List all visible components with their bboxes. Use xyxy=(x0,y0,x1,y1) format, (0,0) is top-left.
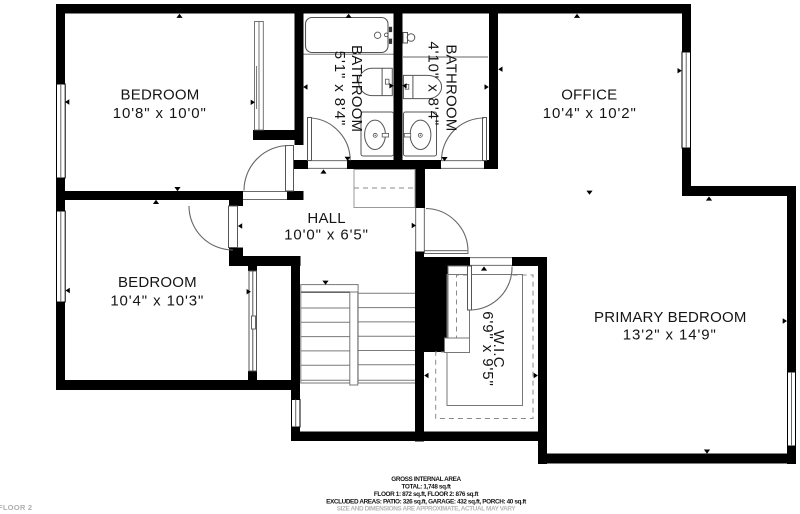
svg-text:EXCLUDED AREAS: PATIO: 326 sq.: EXCLUDED AREAS: PATIO: 326 sq.ft, GARAGE… xyxy=(326,498,527,505)
svg-text:BEDROOM: BEDROOM xyxy=(118,274,197,291)
svg-text:PRIMARY BEDROOM: PRIMARY BEDROOM xyxy=(594,309,746,326)
svg-text:BATHROOM: BATHROOM xyxy=(443,44,460,131)
svg-text:SIZE AND DIMENSIONS ARE APPROX: SIZE AND DIMENSIONS ARE APPROXIMATE, ACT… xyxy=(337,506,517,513)
svg-text:10'4" x 10'2": 10'4" x 10'2" xyxy=(543,105,637,122)
svg-text:TOTAL: 1,748 sq.ft: TOTAL: 1,748 sq.ft xyxy=(401,483,451,490)
svg-text:BEDROOM: BEDROOM xyxy=(121,87,200,104)
svg-text:13'2" x 14'9": 13'2" x 14'9" xyxy=(623,326,717,343)
svg-text:5'1" x 8'4": 5'1" x 8'4" xyxy=(331,51,348,126)
svg-text:OFFICE: OFFICE xyxy=(561,87,617,104)
svg-text:6'9" x 9'5": 6'9" x 9'5" xyxy=(479,311,496,386)
svg-text:FLOOR 2: FLOOR 2 xyxy=(0,503,32,512)
svg-text:HALL: HALL xyxy=(307,210,345,227)
svg-text:10'8" x 10'0": 10'8" x 10'0" xyxy=(113,105,207,122)
svg-text:10'4" x 10'3": 10'4" x 10'3" xyxy=(110,293,204,310)
svg-text:FLOOR 1: 872 sq.ft, FLOOR 2: 8: FLOOR 1: 872 sq.ft, FLOOR 2: 876 sq.ft xyxy=(374,491,479,498)
svg-text:GROSS INTERNAL AREA: GROSS INTERNAL AREA xyxy=(391,476,461,483)
svg-text:BATHROOM: BATHROOM xyxy=(348,45,365,132)
svg-text:10'0" x 6'5": 10'0" x 6'5" xyxy=(284,227,369,244)
svg-text:4'10" x 8'4": 4'10" x 8'4" xyxy=(425,41,442,126)
